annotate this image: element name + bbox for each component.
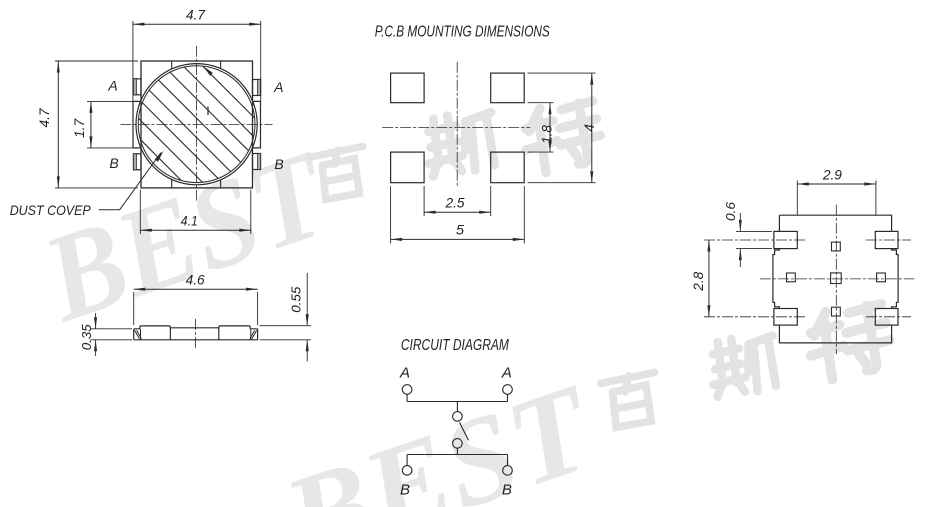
svg-text:2.5: 2.5 — [445, 194, 465, 210]
svg-text:0.6: 0.6 — [723, 201, 738, 221]
svg-text:0.55: 0.55 — [289, 286, 304, 313]
svg-text:5: 5 — [456, 222, 464, 238]
svg-text:4.1: 4.1 — [181, 212, 198, 228]
svg-text:CIRCUIT DIAGRAM: CIRCUIT DIAGRAM — [401, 337, 510, 354]
svg-text:B: B — [274, 156, 283, 172]
svg-text:4.7: 4.7 — [36, 107, 52, 127]
svg-text:4: 4 — [581, 124, 597, 132]
svg-text:0.35: 0.35 — [79, 324, 94, 351]
svg-text:2.9: 2.9 — [822, 166, 842, 182]
svg-text:B: B — [400, 481, 410, 498]
svg-text:P.C.B MOUNTING DIMENSIONS: P.C.B MOUNTING DIMENSIONS — [375, 24, 550, 41]
svg-text:DUST COVEP: DUST COVEP — [10, 202, 92, 218]
svg-text:1.8: 1.8 — [539, 125, 555, 144]
svg-text:A: A — [273, 79, 283, 95]
svg-text:A: A — [107, 78, 117, 94]
svg-text:4.7: 4.7 — [186, 7, 206, 23]
svg-text:B: B — [502, 481, 512, 498]
svg-text:2.8: 2.8 — [690, 272, 706, 292]
svg-text:4.6: 4.6 — [186, 272, 205, 288]
svg-text:A: A — [399, 364, 410, 381]
svg-text:B: B — [109, 155, 118, 171]
svg-text:A: A — [501, 364, 512, 381]
svg-text:1.7: 1.7 — [71, 118, 87, 138]
